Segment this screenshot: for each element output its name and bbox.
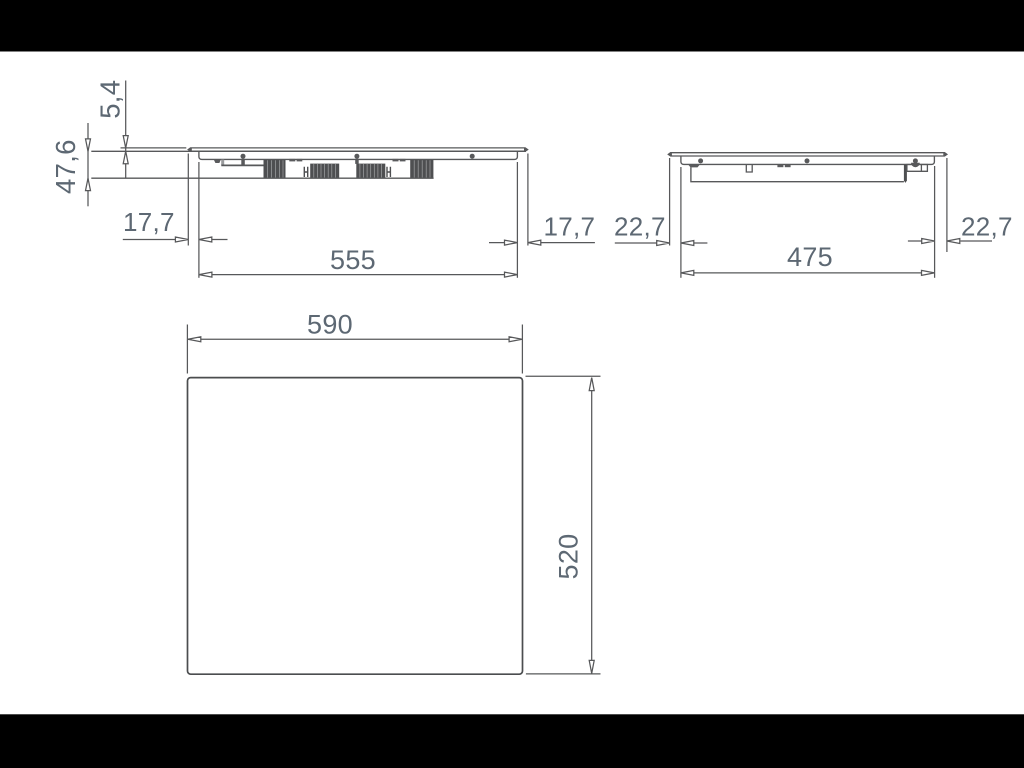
svg-text:22,7: 22,7 bbox=[614, 212, 666, 242]
svg-text:17,7: 17,7 bbox=[123, 207, 175, 237]
svg-text:590: 590 bbox=[307, 309, 353, 339]
svg-text:475: 475 bbox=[787, 242, 833, 272]
svg-text:17,7: 17,7 bbox=[544, 212, 596, 242]
svg-text:5,4: 5,4 bbox=[95, 80, 126, 119]
svg-text:22,7: 22,7 bbox=[961, 212, 1013, 242]
svg-text:47,6: 47,6 bbox=[50, 139, 81, 194]
svg-text:520: 520 bbox=[554, 534, 584, 580]
svg-text:555: 555 bbox=[330, 245, 376, 275]
